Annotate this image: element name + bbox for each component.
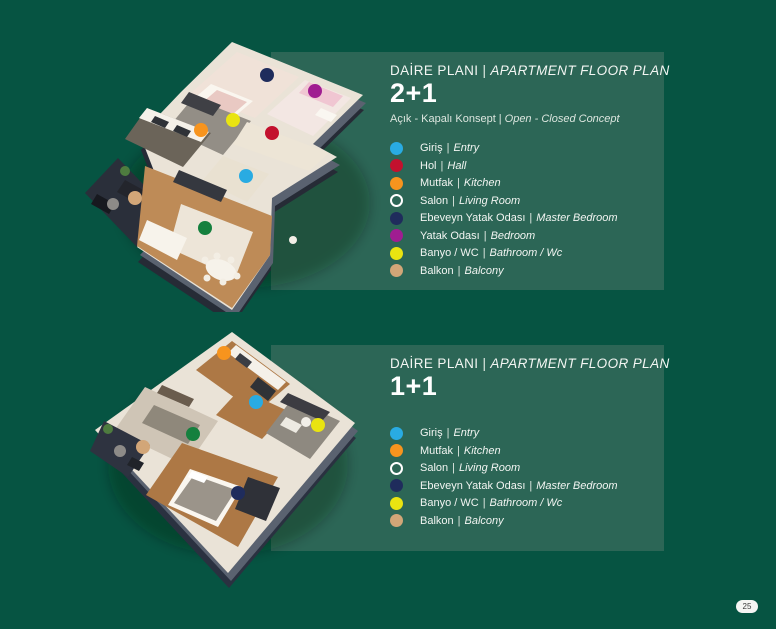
legend-item-ebeveyn: Ebeveyn Yatak Odası|Master Bedroom <box>390 209 654 227</box>
legend-item-hol: Hol|Hall <box>390 157 654 175</box>
legend-list-2plus1: Giriş|EntryHol|HallMutfak|KitchenSalon|L… <box>390 139 654 279</box>
legend-label-en: Master Bedroom <box>536 480 617 492</box>
legend-dot-banyo-icon <box>390 497 403 510</box>
floor-plan-1plus1-illustration <box>90 325 370 600</box>
page-number-badge: 25 <box>736 600 758 613</box>
plan-subtitle-en: Open - Closed Concept <box>505 113 620 125</box>
plan-dot-bathroom <box>311 418 325 432</box>
legend-label-tr: Mutfak <box>420 445 453 457</box>
plan-dot-bedroom <box>308 84 322 98</box>
legend-label-tr: Banyo / WC <box>420 247 479 259</box>
legend-label-en: Kitchen <box>464 177 501 189</box>
legend-item-salon: Salon|Living Room <box>390 459 654 477</box>
legend-separator: | <box>479 497 490 509</box>
plan-title-1plus1: DAİRE PLANI|APARTMENT FLOOR PLAN <box>390 356 654 371</box>
legend-separator: | <box>443 142 454 154</box>
legend-separator: | <box>479 247 490 259</box>
plan-dot-entry <box>249 395 263 409</box>
legend-label-tr: Hol <box>420 160 437 172</box>
legend-label-tr: Ebeveyn Yatak Odası <box>420 480 525 492</box>
legend-label-en: Hall <box>447 160 466 172</box>
legend-item-giris: Giriş|Entry <box>390 139 654 157</box>
title-separator: | <box>478 63 490 78</box>
legend-dot-mutfak-icon <box>390 444 403 457</box>
plan-dot-bathroom <box>226 113 240 127</box>
legend-label-tr: Salon <box>420 195 448 207</box>
legend-dot-salon-icon <box>390 462 403 475</box>
legend-separator: | <box>454 265 465 277</box>
plan-dot-master-bedroom <box>231 486 245 500</box>
plan-dot-kitchen <box>217 346 231 360</box>
plan-subtitle-2plus1: Açık - Kapalı Konsept|Open - Closed Conc… <box>390 113 654 125</box>
plan-title-en: APARTMENT FLOOR PLAN <box>490 356 669 371</box>
plan-dot-balcony <box>128 191 142 205</box>
legend-item-balkon: Balkon|Balcony <box>390 512 654 530</box>
legend-item-salon: Salon|Living Room <box>390 192 654 210</box>
plan-dot-hall <box>265 126 279 140</box>
plan-dot-master-bedroom <box>260 68 274 82</box>
legend-label-tr: Giriş <box>420 142 443 154</box>
legend-label-tr: Ebeveyn Yatak Odası <box>420 212 525 224</box>
legend-separator: | <box>453 177 464 189</box>
plan-dot-living-room <box>186 427 200 441</box>
legend-label-tr: Yatak Odası <box>420 230 480 242</box>
legend-separator: | <box>525 480 536 492</box>
legend-item-mutfak: Mutfak|Kitchen <box>390 442 654 460</box>
legend-item-balkon: Balkon|Balcony <box>390 262 654 280</box>
legend-item-ebeveyn: Ebeveyn Yatak Odası|Master Bedroom <box>390 477 654 495</box>
plan-title-tr: DAİRE PLANI <box>390 356 478 371</box>
legend-label-en: Bathroom / Wc <box>490 497 563 509</box>
legend-separator: | <box>448 195 459 207</box>
legend-item-yatak: Yatak Odası|Bedroom <box>390 227 654 245</box>
subtitle-separator: | <box>496 113 505 125</box>
plan-title-en: APARTMENT FLOOR PLAN <box>490 63 669 78</box>
legend-label-tr: Balkon <box>420 515 454 527</box>
legend-separator: | <box>480 230 491 242</box>
plan-type-label-2plus1: 2+1 <box>390 79 654 107</box>
plan-dot-kitchen <box>194 123 208 137</box>
legend-label-en: Kitchen <box>464 445 501 457</box>
legend-label-tr: Salon <box>420 462 448 474</box>
legend-dot-giris-icon <box>390 427 403 440</box>
plan-title-2plus1: DAİRE PLANI|APARTMENT FLOOR PLAN <box>390 63 654 78</box>
legend-label-en: Entry <box>453 427 479 439</box>
brochure-page: DAİRE PLANI|APARTMENT FLOOR PLAN 2+1 Açı… <box>0 0 776 629</box>
legend-label-tr: Banyo / WC <box>420 497 479 509</box>
legend-item-giris: Giriş|Entry <box>390 424 654 442</box>
legend-dot-balkon-icon <box>390 514 403 527</box>
legend-label-en: Master Bedroom <box>536 212 617 224</box>
legend-separator: | <box>437 160 448 172</box>
legend-label-en: Living Room <box>459 195 520 207</box>
plan-dot-balcony <box>136 440 150 454</box>
legend-list-1plus1: Giriş|EntryMutfak|KitchenSalon|Living Ro… <box>390 424 654 529</box>
legend-item-mutfak: Mutfak|Kitchen <box>390 174 654 192</box>
legend-separator: | <box>525 212 536 224</box>
legend-separator: | <box>443 427 454 439</box>
legend-label-en: Bathroom / Wc <box>490 247 563 259</box>
plan-subtitle-tr: Açık - Kapalı Konsept <box>390 113 496 125</box>
legend-dot-ebeveyn-icon <box>390 479 403 492</box>
legend-label-en: Entry <box>453 142 479 154</box>
legend-separator: | <box>454 515 465 527</box>
floor-plan-2plus1-illustration <box>85 8 400 312</box>
plan-type-label-1plus1: 1+1 <box>390 372 654 400</box>
plan-dot-entry <box>239 169 253 183</box>
plan-dot-living-room <box>198 221 212 235</box>
legend-label-tr: Mutfak <box>420 177 453 189</box>
legend-item-banyo: Banyo / WC|Bathroom / Wc <box>390 494 654 512</box>
legend-label-en: Living Room <box>459 462 520 474</box>
legend-label-en: Balcony <box>465 265 504 277</box>
legend-separator: | <box>448 462 459 474</box>
plan-title-tr: DAİRE PLANI <box>390 63 478 78</box>
legend-label-en: Balcony <box>465 515 504 527</box>
legend-label-tr: Giriş <box>420 427 443 439</box>
legend-separator: | <box>453 445 464 457</box>
legend-item-banyo: Banyo / WC|Bathroom / Wc <box>390 244 654 262</box>
legend-label-en: Bedroom <box>491 230 536 242</box>
legend-label-tr: Balkon <box>420 265 454 277</box>
title-separator: | <box>478 356 490 371</box>
